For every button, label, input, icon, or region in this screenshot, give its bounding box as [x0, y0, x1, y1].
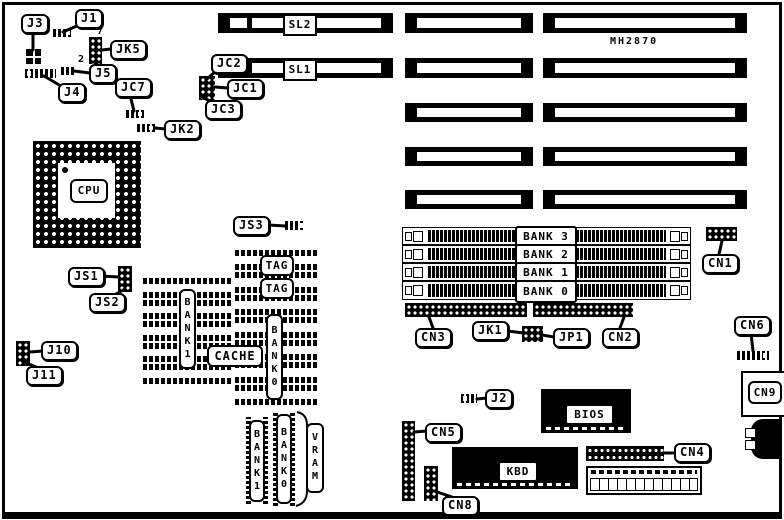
j3-label: J3 — [21, 14, 49, 34]
jc7-label: JC7 — [115, 78, 152, 98]
cn1-label: CN1 — [702, 254, 739, 274]
slot-label-sl1: SL1 — [283, 59, 317, 81]
jp1-label: JP1 — [553, 328, 590, 348]
j1-label: J1 — [75, 9, 103, 29]
bios-label: BIOS — [565, 404, 614, 425]
cn8-label: CN8 — [442, 496, 479, 516]
cache-bank0-label: BANK0 — [266, 314, 283, 400]
cn2-label: CN2 — [602, 328, 639, 348]
jk5-label: JK5 — [110, 40, 147, 60]
j10-label: J10 — [41, 341, 78, 361]
callout-line-cn3 — [429, 317, 433, 328]
board-model-text: MH2870 — [610, 36, 658, 47]
cn3-label: CN3 — [415, 328, 452, 348]
vram-bank1-label: BANK1 — [249, 420, 265, 502]
js1-label: JS1 — [68, 267, 105, 287]
motherboard-diagram: MH2870 SL2 SL1 CPU 7 2 — [0, 0, 784, 520]
tag-label-1: TAG — [260, 255, 294, 276]
slot-label-sl2: SL2 — [283, 14, 317, 36]
j4-label: J4 — [58, 83, 86, 103]
jk2-label: JK2 — [164, 120, 201, 140]
callout-line-cn2 — [620, 317, 624, 328]
cache-label: CACHE — [207, 345, 263, 367]
callout-line-j5 — [74, 71, 90, 73]
cpu-label: CPU — [70, 179, 108, 203]
cn6-label: CN6 — [734, 316, 771, 336]
jc3-label: JC3 — [205, 100, 242, 120]
j5-label: J5 — [89, 64, 117, 84]
js3-label: JS3 — [233, 216, 270, 236]
j11-label: J11 — [26, 366, 63, 386]
j2-label: J2 — [485, 389, 513, 409]
jk1-label: JK1 — [472, 321, 509, 341]
callout-line-js3 — [268, 225, 286, 226]
kbd-label: KBD — [498, 461, 538, 482]
jk5-pin2-number: 2 — [78, 54, 84, 65]
tag-label-2: TAG — [260, 278, 294, 299]
cache-bank1-label: BANK1 — [179, 289, 196, 369]
cn9-label: CN9 — [748, 381, 782, 404]
jc1-label: JC1 — [227, 79, 264, 99]
vram-group-label: VRAM — [306, 423, 324, 493]
cn5-label: CN5 — [425, 423, 462, 443]
callout-line-cn1 — [719, 241, 722, 254]
simm-bank0-label: BANK 0 — [515, 280, 577, 303]
cn4-label: CN4 — [674, 443, 711, 463]
jc2-label: JC2 — [211, 54, 248, 74]
vram-bank0-label: BANK0 — [276, 414, 292, 504]
js2-label: JS2 — [89, 293, 126, 313]
callout-line-jk1 — [508, 331, 523, 333]
